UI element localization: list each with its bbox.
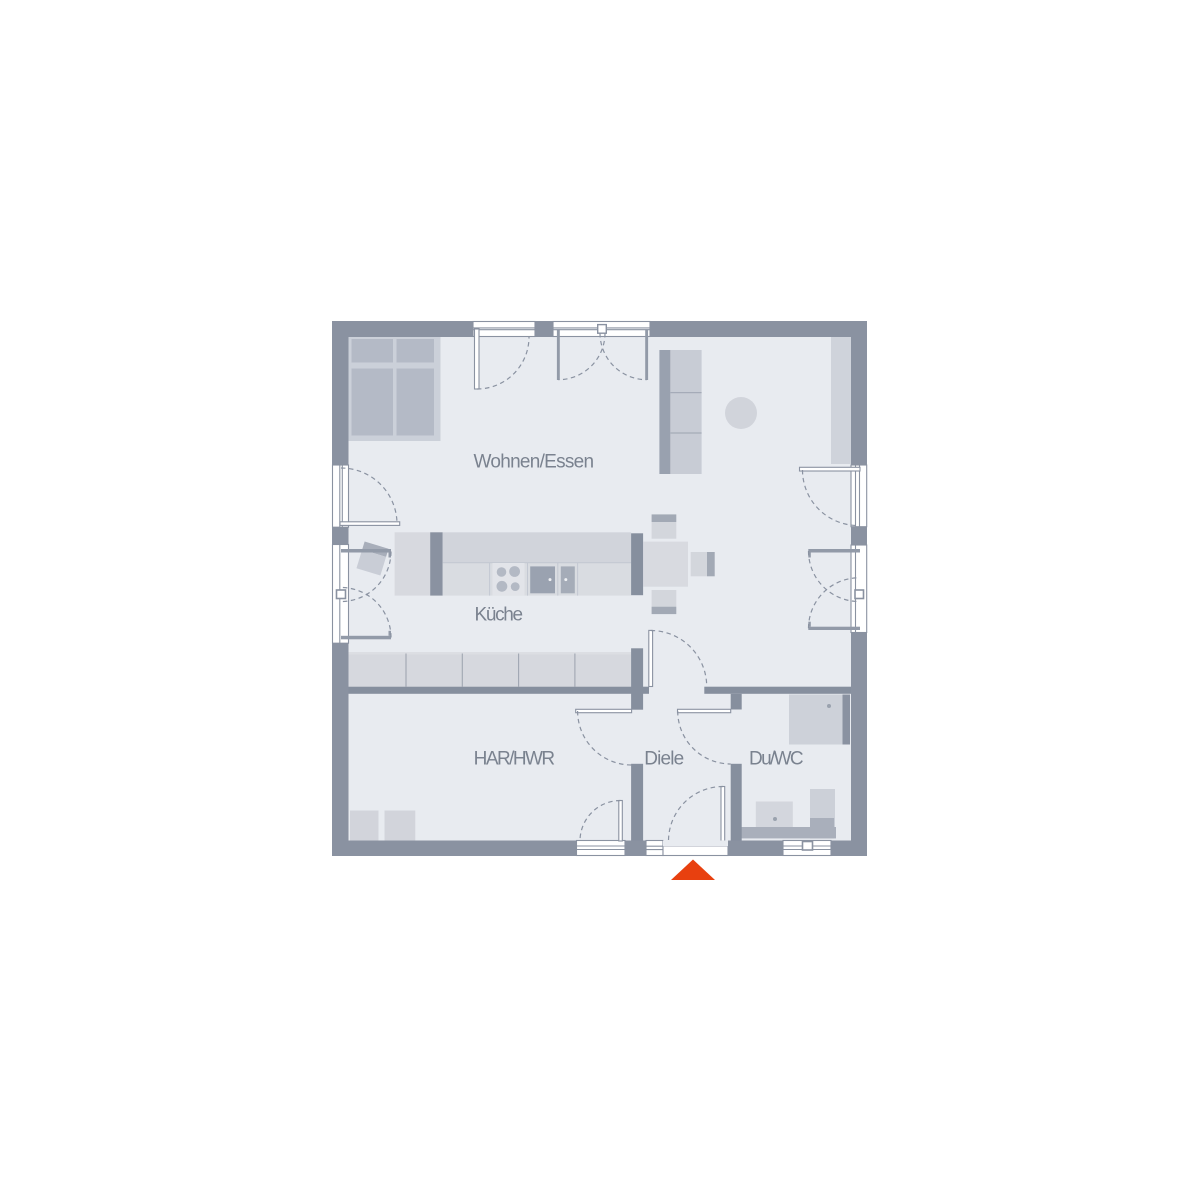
svg-text:Küche: Küche — [475, 605, 524, 626]
svg-text:Wohnen/Essen: Wohnen/Essen — [474, 451, 595, 472]
svg-text:Du/WC: Du/WC — [749, 748, 804, 769]
svg-text:HAR/HWR: HAR/HWR — [474, 748, 556, 769]
svg-text:Diele: Diele — [644, 748, 684, 769]
